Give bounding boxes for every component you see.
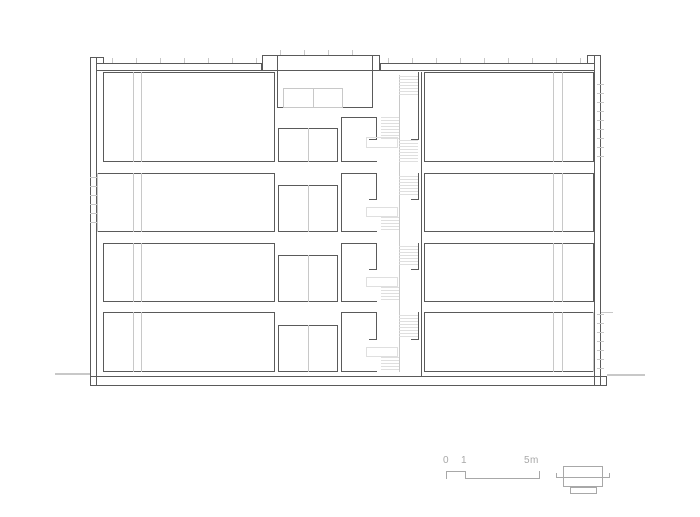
roof-insulation-ticks-bulkhead	[280, 50, 370, 55]
key-plan-section-hook-right	[609, 473, 610, 478]
shaft-line-left-f3-b	[141, 243, 142, 302]
scale-bar-tick-5	[539, 471, 540, 479]
bulkhead-wall-left	[277, 55, 278, 108]
bulkhead-skylight-divider	[313, 88, 314, 108]
room-left-floor1	[103, 72, 275, 162]
shaft-line-left-f1-a	[133, 72, 134, 162]
stair-landing-f4	[366, 347, 398, 357]
foundation-slab	[90, 376, 607, 386]
shaft-line-left-f2-b	[141, 173, 142, 232]
shaft-line-right-f1-a	[553, 72, 554, 162]
shaft-line-right-f3-a	[553, 243, 554, 302]
shaft-line-right-f4-a	[553, 312, 554, 372]
stair-core-party-wall	[421, 72, 422, 376]
shaft-line-left-f3-a	[133, 243, 134, 302]
room-right-floor4-window-edge	[593, 312, 594, 372]
shaft-line-right-f2-b	[562, 173, 563, 232]
stair-wall-right-seg-f4	[418, 312, 419, 339]
stair-flight-f1-lower	[399, 140, 418, 162]
window-mullion-ticks-right-f4	[597, 314, 604, 371]
shaft-line-right-f1-b	[562, 72, 563, 162]
stair-landing-f2	[366, 207, 398, 217]
scale-bar-segment-0-1	[446, 471, 466, 472]
shaft-line-right-f2-a	[553, 173, 554, 232]
stair-wall-right-seg-f2	[418, 173, 419, 199]
roof-slab-left	[96, 63, 262, 71]
stair-hall-floor3	[341, 243, 377, 302]
window-mullion-ticks-right-f1	[597, 84, 604, 161]
stair-door-wall-floor2	[376, 173, 377, 199]
stair-door-wall-floor3	[376, 243, 377, 269]
room-right-floor1	[424, 72, 594, 162]
stair-door-wall-floor4	[376, 312, 377, 339]
ground-line-left	[55, 373, 90, 375]
stair-hall-floor2	[341, 173, 377, 232]
stair-door-lintel-floor2	[369, 199, 377, 200]
stair-door-lintel-floor3	[369, 269, 377, 270]
stair-bulkhead-cap	[262, 55, 380, 71]
stair-wall-right-seg-f3	[418, 243, 419, 269]
stair-landing-f3	[366, 277, 398, 287]
section-drawing	[0, 0, 700, 517]
shaft-line-left-f4-b	[141, 312, 142, 372]
room-right-floor4	[424, 312, 594, 372]
shaft-line-right-f4-b	[562, 312, 563, 372]
stair-hall-floor4	[341, 312, 377, 372]
room-left-floor4	[103, 312, 275, 372]
shaft-line-left-f1-b	[141, 72, 142, 162]
stair-flight-f1-upper	[399, 76, 418, 97]
shaft-line-right-f3-b	[562, 243, 563, 302]
stair-flight-f4-upper	[399, 315, 418, 337]
scale-label-5m: 5m	[524, 455, 539, 466]
stair-wall-right-hook-f3	[411, 269, 419, 270]
roof-insulation-ticks-right	[388, 58, 588, 63]
stair-flight-f4-lower	[381, 357, 399, 372]
room-left-floor2	[97, 173, 275, 232]
roof-slab-right	[380, 63, 595, 71]
window-mullion-ticks-left-f2	[90, 177, 97, 230]
stair-flight-f3-lower	[381, 287, 399, 302]
room-right-floor3	[424, 243, 594, 302]
room-right-floor2	[424, 173, 594, 232]
stair-flight-f2-lower	[381, 217, 399, 232]
stair-flight-f3-upper	[399, 246, 418, 267]
scale-bar-segment-1-5	[465, 478, 540, 479]
stair-wall-right-hook-f2	[411, 199, 419, 200]
core-room-floor3-divider	[308, 255, 309, 302]
key-plan-annex	[570, 487, 597, 494]
core-room-floor1-divider	[308, 128, 309, 162]
shaft-line-left-f2-a	[133, 173, 134, 232]
roof-insulation-ticks-left	[112, 58, 260, 63]
right-parapet-cap	[587, 55, 595, 56]
key-plan-section-line	[556, 477, 610, 478]
grade-tick-right	[601, 312, 613, 313]
stair-landing-f1	[366, 137, 398, 148]
shaft-line-left-f4-a	[133, 312, 134, 372]
stair-wall-right-seg-f1	[418, 72, 419, 139]
scale-bar-tick-0	[446, 471, 447, 479]
core-room-floor4-divider	[308, 325, 309, 372]
stair-door-wall-floor1	[376, 117, 377, 139]
stair-flight-f2-upper	[399, 176, 418, 197]
scale-label-1: 1	[461, 455, 467, 466]
room-left-floor2-window-edge	[97, 173, 98, 232]
scale-label-0: 0	[443, 455, 449, 466]
stair-door-lintel-floor4	[369, 339, 377, 340]
room-left-floor3	[103, 243, 275, 302]
architectural-sheet: 0 1 5m	[0, 0, 700, 517]
bulkhead-wall-right	[372, 55, 373, 108]
stair-wall-right-hook-f4	[411, 339, 419, 340]
ground-line-right	[607, 374, 645, 376]
key-plan-section-hook-left	[556, 473, 557, 478]
core-room-floor2-divider	[308, 185, 309, 232]
